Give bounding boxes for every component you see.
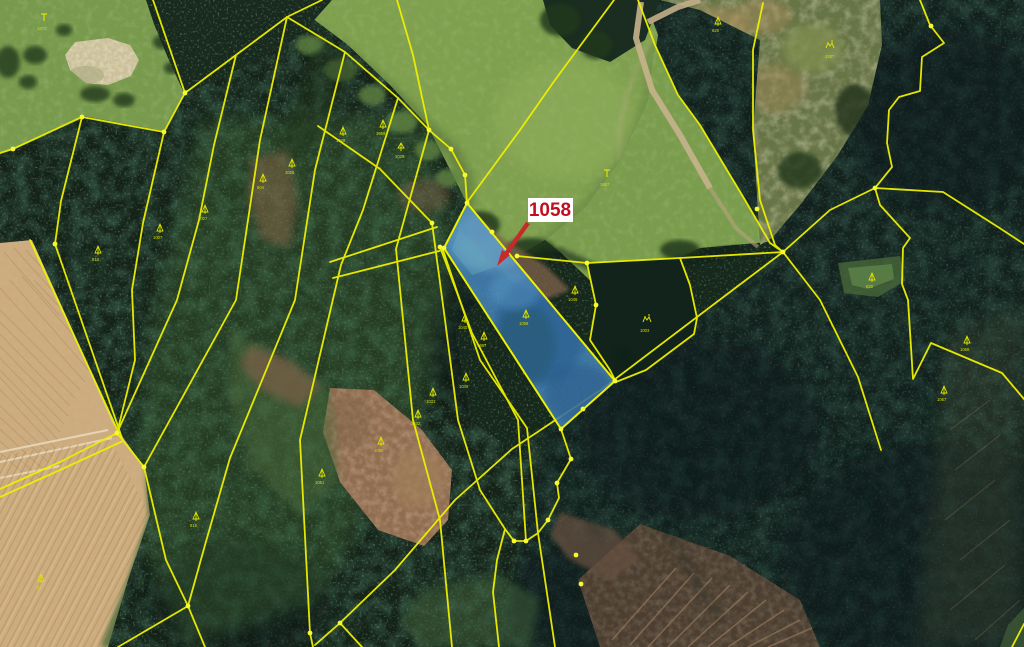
svg-text:4287: 4287 [825,54,835,59]
svg-text:1031: 1031 [426,399,436,404]
svg-text:1058: 1058 [519,321,529,326]
svg-text:1067: 1067 [937,397,947,402]
svg-text:1058: 1058 [529,200,571,221]
svg-text:1028: 1028 [285,170,295,175]
svg-text:1040: 1040 [458,325,468,330]
svg-text:1046: 1046 [568,297,578,302]
svg-text:604: 604 [257,185,265,190]
svg-text:1003: 1003 [640,328,650,333]
svg-text:625: 625 [712,28,720,33]
svg-text:1872: 1872 [37,26,47,31]
svg-text:1029: 1029 [395,154,405,159]
svg-text:1032: 1032 [411,421,421,426]
svg-text:1068: 1068 [960,347,970,352]
svg-text:620: 620 [866,284,874,289]
svg-text:1051: 1051 [315,480,325,485]
svg-text:1048: 1048 [336,138,346,143]
svg-text:1050: 1050 [374,448,384,453]
svg-text:1027: 1027 [198,216,208,221]
svg-text:1049: 1049 [459,384,469,389]
svg-text:3959: 3959 [376,131,386,136]
svg-text:30: 30 [36,585,41,590]
svg-text:1687: 1687 [477,343,487,348]
svg-text:1007: 1007 [153,235,163,240]
svg-text:818: 818 [92,257,100,262]
svg-text:1887: 1887 [600,182,610,187]
svg-text:816: 816 [190,523,198,528]
